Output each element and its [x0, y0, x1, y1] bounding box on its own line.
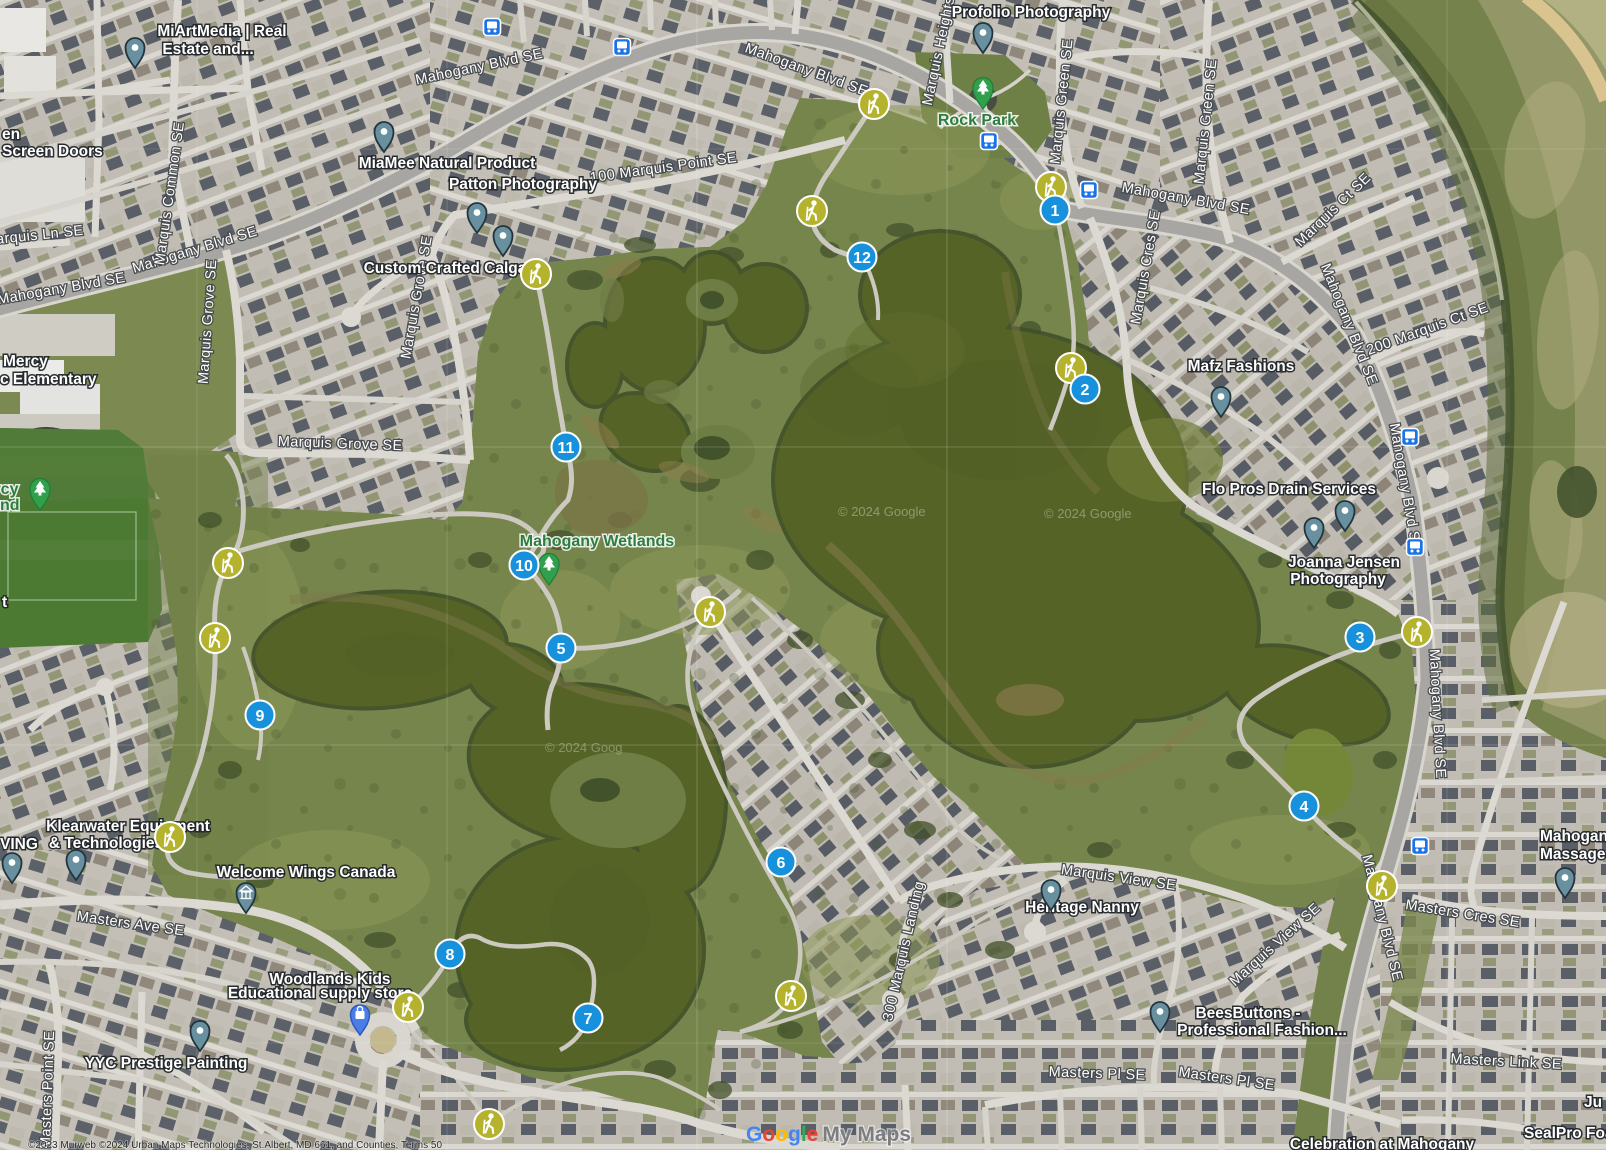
svg-text:Photography: Photography	[1290, 571, 1386, 588]
svg-text:Joanna Jensen: Joanna Jensen	[1288, 554, 1400, 571]
svg-text:©2023 Murweb ©2024 Urban Maps: ©2023 Murweb ©2024 Urban Maps Technologi…	[28, 1140, 442, 1150]
svg-text:Mahogany Wetlands: Mahogany Wetlands	[520, 533, 674, 550]
svg-text:YYC Prestige Painting: YYC Prestige Painting	[85, 1055, 248, 1072]
svg-text:5: 5	[557, 641, 566, 658]
svg-text:6: 6	[777, 855, 786, 872]
svg-text:ercy: ercy	[0, 481, 19, 498]
svg-text:Patton Photography: Patton Photography	[449, 176, 597, 193]
svg-text:3: 3	[1356, 630, 1365, 647]
svg-text:7: 7	[584, 1011, 593, 1028]
svg-text:Mercy: Mercy	[3, 353, 48, 370]
svg-text:Mafz Fashions: Mafz Fashions	[1188, 358, 1295, 375]
svg-text:4: 4	[1300, 799, 1309, 816]
svg-text:en: en	[2, 126, 20, 143]
svg-text:© 2024 Google: © 2024 Google	[838, 504, 926, 519]
svg-text:Rock Park: Rock Park	[938, 112, 1016, 129]
svg-text:Celebration at Mahogany: Celebration at Mahogany	[1290, 1136, 1475, 1150]
svg-text:Professional Fashion...: Professional Fashion...	[1177, 1022, 1347, 1039]
svg-text:9: 9	[256, 708, 265, 725]
svg-text:Welcome Wings Canada: Welcome Wings Canada	[217, 864, 396, 881]
svg-text:t: t	[2, 594, 7, 611]
svg-text:Screen Doors: Screen Doors	[2, 143, 103, 160]
svg-text:Massage: Massage	[1540, 846, 1606, 863]
svg-text:12: 12	[853, 250, 871, 267]
svg-text:© 2024 Goog: © 2024 Goog	[545, 740, 623, 755]
svg-text:MiaMee Natural Product: MiaMee Natural Product	[359, 155, 536, 172]
svg-text:ound: ound	[0, 497, 20, 514]
svg-text:2: 2	[1081, 382, 1090, 399]
svg-text:VING: VING	[0, 836, 38, 853]
svg-text:8: 8	[446, 947, 455, 964]
svg-text:10: 10	[515, 558, 533, 575]
svg-text:Estate and...: Estate and...	[162, 41, 253, 58]
svg-text:GoogleMy Maps: GoogleMy Maps	[746, 1123, 911, 1146]
svg-text:Ju: Ju	[1584, 1094, 1602, 1111]
svg-text:c Elementary: c Elementary	[0, 371, 97, 388]
svg-text:1: 1	[1051, 203, 1060, 220]
svg-text:Masters Pl SE: Masters Pl SE	[1048, 1064, 1146, 1083]
svg-text:Flo Pros Drain Services: Flo Pros Drain Services	[1202, 481, 1376, 498]
svg-text:Profolio Photography: Profolio Photography	[952, 4, 1111, 21]
svg-text:Heritage Nanny: Heritage Nanny	[1025, 899, 1139, 916]
svg-text:MiArtMedia | Real: MiArtMedia | Real	[157, 23, 286, 40]
svg-text:11: 11	[558, 440, 575, 457]
svg-text:Custom Crafted Calgar: Custom Crafted Calgar	[364, 260, 533, 277]
svg-text:SealPro Foa: SealPro Foa	[1524, 1125, 1606, 1142]
svg-text:BeesButtons -: BeesButtons -	[1195, 1005, 1300, 1022]
svg-text:© 2024 Google: © 2024 Google	[1044, 506, 1132, 521]
svg-text:& Technologies: & Technologies	[49, 835, 163, 852]
svg-text:Mahogany: Mahogany	[1540, 828, 1606, 845]
svg-text:Educational supply store: Educational supply store	[228, 985, 413, 1002]
